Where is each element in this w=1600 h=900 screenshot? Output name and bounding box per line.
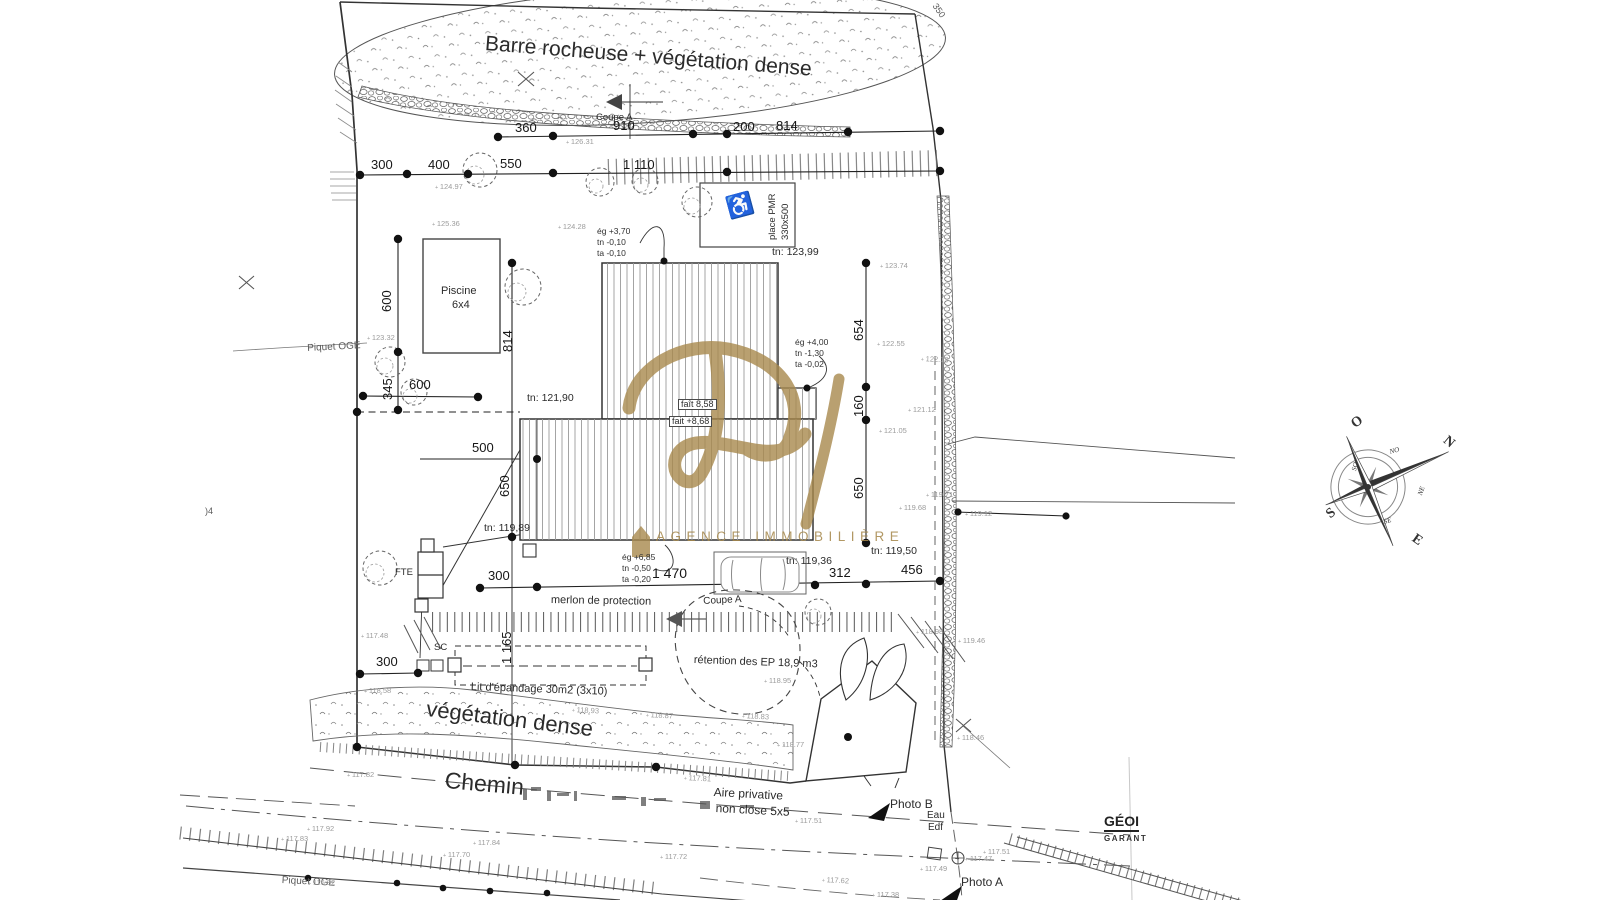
piscine-dim: 6x4	[452, 300, 470, 312]
tn-123-99: tn: 123,99	[772, 247, 819, 258]
edge-mark: )4	[205, 507, 213, 516]
spot-elevation: 118.77	[777, 741, 804, 750]
dim-200: 200	[733, 120, 755, 134]
zone-vegetation-dense: végétation dense	[425, 697, 594, 740]
spot-elevation: 117.92	[307, 825, 334, 834]
merlon-label: merlon de protection	[551, 595, 651, 608]
photo-a-label: Photo A	[961, 876, 1003, 889]
dim-650-left: 650	[498, 475, 512, 497]
fte-label: FTE	[395, 568, 413, 578]
aire-privative-line2: non close 5x5	[715, 802, 790, 818]
utility-edf: Edf	[928, 823, 943, 834]
spot-elevation: 125.36	[432, 220, 460, 229]
compass-so: SO	[1351, 462, 1360, 472]
aire-privative-line1: Aire privative	[713, 786, 783, 802]
spot-elevation: 126.31	[566, 138, 594, 147]
compass-ne: NE	[1417, 486, 1427, 497]
spot-elevation: 118.87	[646, 711, 674, 721]
spot-elevation: 121.05	[879, 427, 907, 436]
spot-elevation: 118.93	[572, 706, 600, 716]
dim-300-top: 300	[371, 158, 393, 172]
spot-elevation: 119.68	[899, 504, 926, 513]
dim-312: 312	[829, 566, 851, 580]
dim-300-bottom: 300	[488, 569, 510, 583]
tn-119-50: tn: 119,50	[871, 546, 917, 557]
spot-elevation: 119.46	[958, 637, 985, 646]
dim-600-h: 600	[409, 378, 431, 392]
retention-label: rétention des EP 18,9 m3	[694, 655, 818, 671]
spot-elevation: 117.72	[660, 853, 687, 862]
faitage-1: faît 8,58	[678, 399, 717, 410]
spot-elevation: 117.62	[822, 876, 850, 886]
road-chemin: Chemin	[444, 768, 525, 799]
dim-160: 160	[852, 395, 866, 417]
cote-egout-2: ég +4,00 tn -1,30 ta -0,02	[795, 337, 828, 370]
dim-1165: 1 165	[500, 631, 514, 664]
spot-elevation: 117.47	[965, 855, 992, 864]
parcel-350: 350	[930, 2, 946, 20]
surveyor-logo: GÉOI	[1104, 813, 1139, 829]
spot-elevation: 116.82	[308, 879, 335, 888]
dim-814-top: 814	[776, 119, 798, 133]
dim-300-low: 300	[376, 655, 398, 669]
lit-epandage-label: Lit d'épandage 30m2 (3x10)	[471, 682, 608, 698]
sc-label: SC	[434, 643, 447, 653]
compass-o: O	[1349, 414, 1366, 432]
spot-elevation: 122.18	[921, 355, 949, 365]
tn-119-36: tn: 119,36	[786, 556, 832, 567]
spot-elevation: 119.12	[965, 510, 992, 519]
wheelchair-icon: ♿	[724, 191, 756, 220]
piquet-oge-top: Piquet OGE	[307, 341, 361, 354]
tn-121-90: tn: 121,90	[527, 393, 574, 404]
compass-n: N	[1440, 434, 1457, 452]
spot-elevation: 124.28	[558, 223, 586, 232]
dim-345-v: 345	[381, 378, 395, 400]
spot-elevation: 122.55	[877, 340, 905, 349]
spot-elevation: 117.84	[473, 839, 500, 848]
spot-elevation: 118.95	[764, 677, 791, 686]
compass-e: E	[1409, 532, 1425, 549]
dim-360: 360	[515, 121, 537, 135]
dim-600-v: 600	[380, 290, 394, 312]
watermark-agency-text: AGENCE IMMOBILIÈRE	[656, 529, 904, 544]
dim-910: 910	[613, 119, 635, 133]
surveyor-subtitle: GARANT	[1104, 834, 1147, 843]
compass-se: SE	[1383, 517, 1392, 526]
dim-814-v: 814	[501, 330, 515, 352]
coupe-a-bottom: Coupe A	[703, 595, 742, 607]
spot-elevation: 118.83	[742, 712, 770, 722]
dim-456: 456	[901, 563, 923, 577]
annotation-layer: Barre rocheuse + végétation densevégétat…	[0, 0, 1600, 900]
spot-elevation: 124.97	[435, 183, 463, 192]
utility-eau: Eau	[927, 811, 945, 822]
tn-119-89: tn: 119,89	[484, 523, 530, 534]
place-pmr-label: place PMR	[768, 194, 778, 240]
spot-elevation: 118.98	[916, 628, 943, 637]
spot-elevation: 117.70	[443, 851, 470, 860]
site-plan-page: Barre rocheuse + végétation densevégétat…	[0, 0, 1600, 900]
spot-elevation: 117.38	[872, 891, 899, 900]
spot-elevation: 121.12	[908, 406, 936, 415]
dim-1470: 1 470	[652, 566, 687, 581]
place-pmr-dim: 330x500	[781, 204, 791, 240]
spot-elevation: 117.81	[684, 774, 712, 784]
spot-elevation: 119.71	[926, 491, 953, 500]
photo-b-label: Photo B	[890, 798, 933, 811]
spot-elevation: 117.49	[920, 865, 947, 874]
compass-s: S	[1324, 506, 1339, 522]
cote-egout-1: ég +3,70 tn -0,10 ta -0,10	[597, 226, 630, 259]
cote-egout-3: ég +6,85 tn -0,50 ta -0,20	[622, 552, 655, 585]
dim-650-right: 650	[852, 477, 866, 499]
spot-elevation: 117.48	[361, 632, 388, 641]
spot-elevation: 117.83	[281, 835, 308, 844]
zone-barre-rocheuse: Barre rocheuse + végétation dense	[484, 33, 812, 81]
surveyor-name: GÉOI	[1104, 813, 1139, 832]
dim-1110: 1 110	[623, 158, 655, 172]
dim-500: 500	[472, 441, 494, 455]
spot-elevation: 117.51	[795, 817, 822, 826]
spot-elevation: 117.82	[347, 771, 374, 780]
compass-no: NO	[1389, 446, 1400, 456]
spot-elevation: 123.74	[880, 262, 908, 271]
spot-elevation: 118.58	[364, 687, 391, 696]
spot-elevation: 123.32	[367, 334, 395, 343]
spot-elevation: 118.46	[957, 734, 984, 743]
faitage-2: fait +8,68	[669, 416, 712, 427]
piscine-label: Piscine	[441, 286, 476, 298]
dim-654: 654	[852, 319, 866, 341]
dim-400: 400	[428, 158, 450, 172]
dim-550: 550	[500, 157, 522, 171]
